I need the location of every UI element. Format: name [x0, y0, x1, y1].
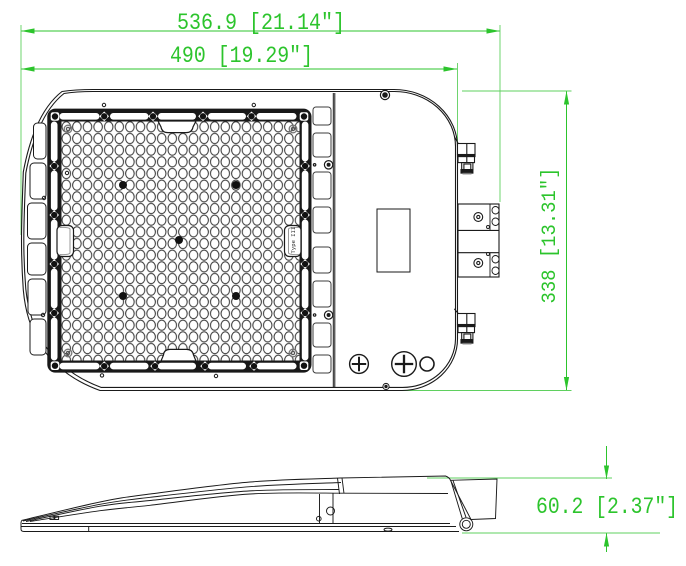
svg-text:60.2 [2.37"]: 60.2 [2.37"]: [536, 494, 678, 520]
svg-text:Type III: Type III: [290, 227, 297, 254]
svg-text:490 [19.29"]: 490 [19.29"]: [170, 43, 313, 69]
svg-text:536.9 [21.14"]: 536.9 [21.14"]: [177, 10, 345, 36]
svg-text:338 [13.31"]: 338 [13.31"]: [539, 168, 562, 304]
